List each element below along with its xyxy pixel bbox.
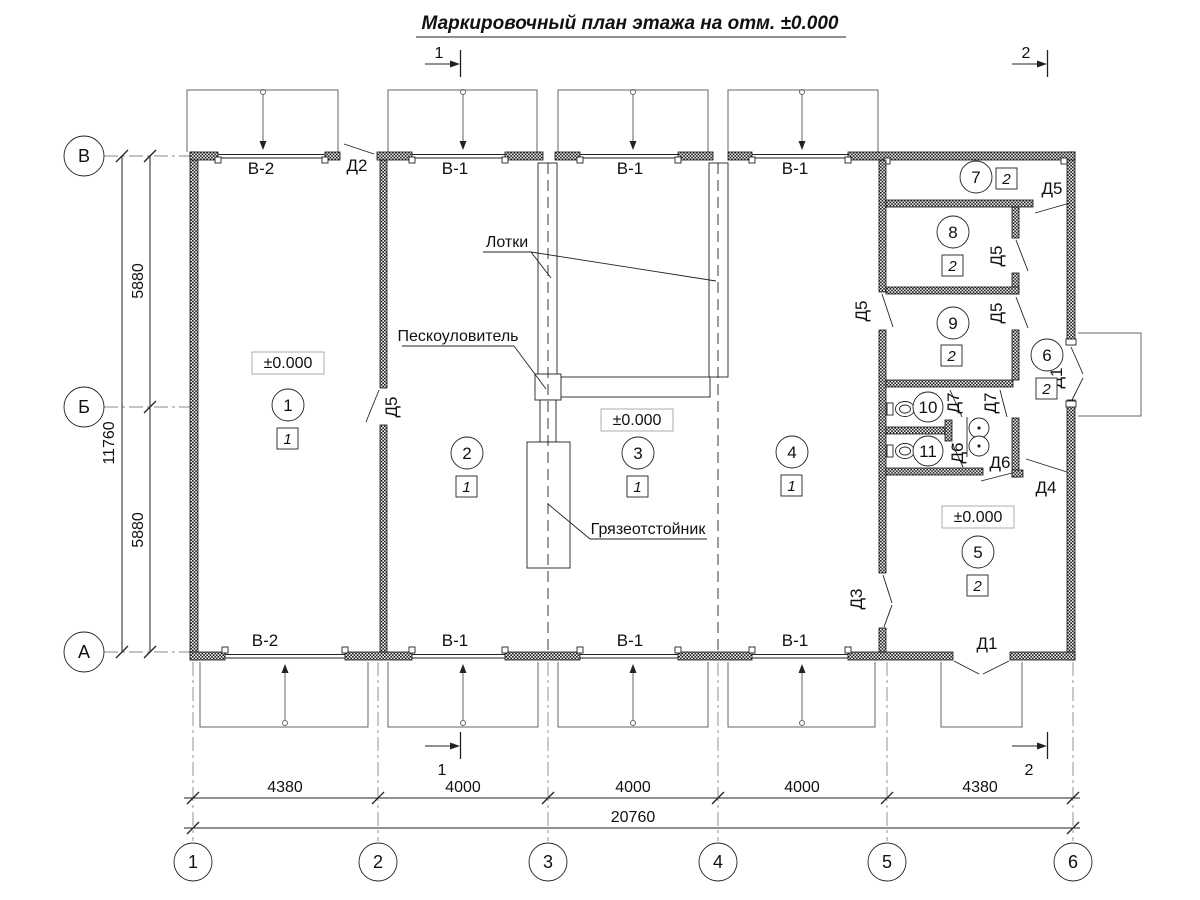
trays-label: Лотки [486,234,528,251]
dim-left-total: 11760 [101,421,118,464]
entrance-porch-bottom [941,662,1022,727]
sand-trap-label: Пескоуловитель [398,328,519,345]
svg-text:7: 7 [971,168,980,187]
col-axis-1: 1 [188,852,198,872]
room-marker-4: 4 1 [776,436,808,496]
svg-text:1: 1 [633,479,641,496]
room-marker-8: 8 2 [937,216,969,276]
col-axis-2: 2 [373,852,383,872]
svg-text:1: 1 [283,396,292,415]
section-mark-1-top: 1 [425,45,461,77]
door-label-d4: Д4 [1036,478,1057,497]
col-axis-markers: 1 2 3 4 5 6 [174,843,1092,881]
svg-text:2: 2 [462,444,471,463]
row-axis-a-label: А [78,642,90,662]
dim-left-span-2: 5880 [130,512,147,548]
door-label-d1: Д1 [977,634,998,653]
tray-channel-left [538,163,557,377]
annotation-trays: Лотки [483,234,716,281]
svg-text:2: 2 [946,348,956,365]
dim-left-span-1: 5880 [130,263,147,299]
row-axis-a: А [64,632,190,672]
window-label-v1: В-1 [442,159,468,178]
room-marker-10: 10 [913,392,943,422]
row-axis-b-label: Б [78,397,90,417]
section-1-label: 1 [435,45,444,62]
svg-text:5: 5 [973,543,982,562]
left-dimensions: 11760 5880 5880 [101,150,156,658]
svg-text:1: 1 [787,478,795,495]
section-mark-2-bottom: 2 [1012,732,1048,779]
door-label-d6: Д6 [990,453,1011,472]
svg-text:2: 2 [1001,171,1011,188]
room-marker-11: 11 [913,436,943,466]
window-label-v2: В-2 [252,631,278,650]
dim-span-2-3: 4000 [445,779,481,796]
room-marker-3: 3 1 [622,437,654,497]
mud-settler-label: Грязеотстойник [591,521,707,538]
door-label-d2: Д2 [347,156,368,175]
annotation-sand-trap: Пескоуловитель [398,328,546,389]
dim-span-4-5: 4000 [784,779,820,796]
floor-plan-drawing: Маркировочный план этажа на отм. ±0.000 … [0,0,1200,900]
window-label-v1: В-1 [617,159,643,178]
col-axis-4: 4 [713,852,723,872]
svg-text:11: 11 [919,442,937,461]
room-marker-1: 1 1 [272,389,304,449]
row-axis-b: Б [64,387,190,427]
door-label-d6: Д6 [948,443,967,464]
door-label-d5: Д5 [1042,179,1063,198]
svg-text:2: 2 [972,578,982,595]
plan-canvas: Маркировочный план этажа на отм. ±0.000 … [0,0,1200,900]
room-marker-7: 7 2 [960,161,1017,193]
row-axis-v: В [64,136,190,176]
svg-text:1: 1 [462,479,470,496]
tray-channel-right [709,163,728,377]
dim-span-3-4: 4000 [615,779,651,796]
door-label-d3: Д3 [847,589,866,610]
window-label-v1: В-1 [442,631,468,650]
door-label-d5: Д5 [382,397,401,418]
dim-span-1-2: 4380 [267,779,303,796]
window-label-v1: В-1 [782,631,808,650]
canopies-top [187,90,878,153]
trench-system [527,163,728,650]
svg-text:6: 6 [1042,346,1051,365]
elevation-mark: ±0.000 [264,355,313,372]
section-mark-1-bottom: 1 [425,732,461,779]
row-axis-v-label: В [78,146,90,166]
svg-text:2: 2 [947,258,957,275]
door-label-d5: Д5 [987,246,1006,267]
room-marker-9: 9 2 [937,307,969,366]
sink-icons [967,417,989,457]
elevation-mark: ±0.000 [613,412,662,429]
door-label-d5: Д5 [852,301,871,322]
bottom-dimensions: 4380 4000 4000 4000 4380 20760 [184,779,1080,834]
svg-text:1: 1 [283,431,291,448]
toilet-icon [887,444,915,459]
door-label-d7: Д7 [981,393,1000,414]
section-2-label: 2 [1022,45,1031,62]
col-axis-6: 6 [1068,852,1078,872]
svg-text:3: 3 [633,444,642,463]
col-axis-3: 3 [543,852,553,872]
section-mark-2-top: 2 [1012,45,1048,77]
section-1-label: 1 [438,762,447,779]
window-label-v1: В-1 [782,159,808,178]
section-2-label: 2 [1025,762,1034,779]
svg-text:8: 8 [948,223,957,242]
title-text: Маркировочный план этажа на отм. ±0.000 [422,13,839,34]
room-marker-5: 5 2 [962,536,994,596]
door-label-d5: Д5 [987,303,1006,324]
svg-text:9: 9 [948,314,957,333]
window-label-v2: В-2 [248,159,274,178]
dim-span-5-6: 4380 [962,779,998,796]
svg-text:2: 2 [1041,381,1051,398]
entrance-porch-right [1078,333,1141,416]
annotation-mud-settler: Грязеотстойник [548,504,707,539]
toilet-icon [887,402,915,417]
window-label-v1: В-1 [617,631,643,650]
room-marker-2: 2 1 [451,437,483,497]
svg-text:10: 10 [919,398,938,417]
dim-total: 20760 [611,809,656,826]
page-title: Маркировочный план этажа на отм. ±0.000 [416,13,846,37]
tray-channel-cross [556,377,710,397]
svg-text:4: 4 [787,443,796,462]
elevation-mark: ±0.000 [954,509,1003,526]
col-axis-5: 5 [882,852,892,872]
canopies-bottom [200,662,1022,727]
door-label-d7: Д7 [944,393,963,414]
